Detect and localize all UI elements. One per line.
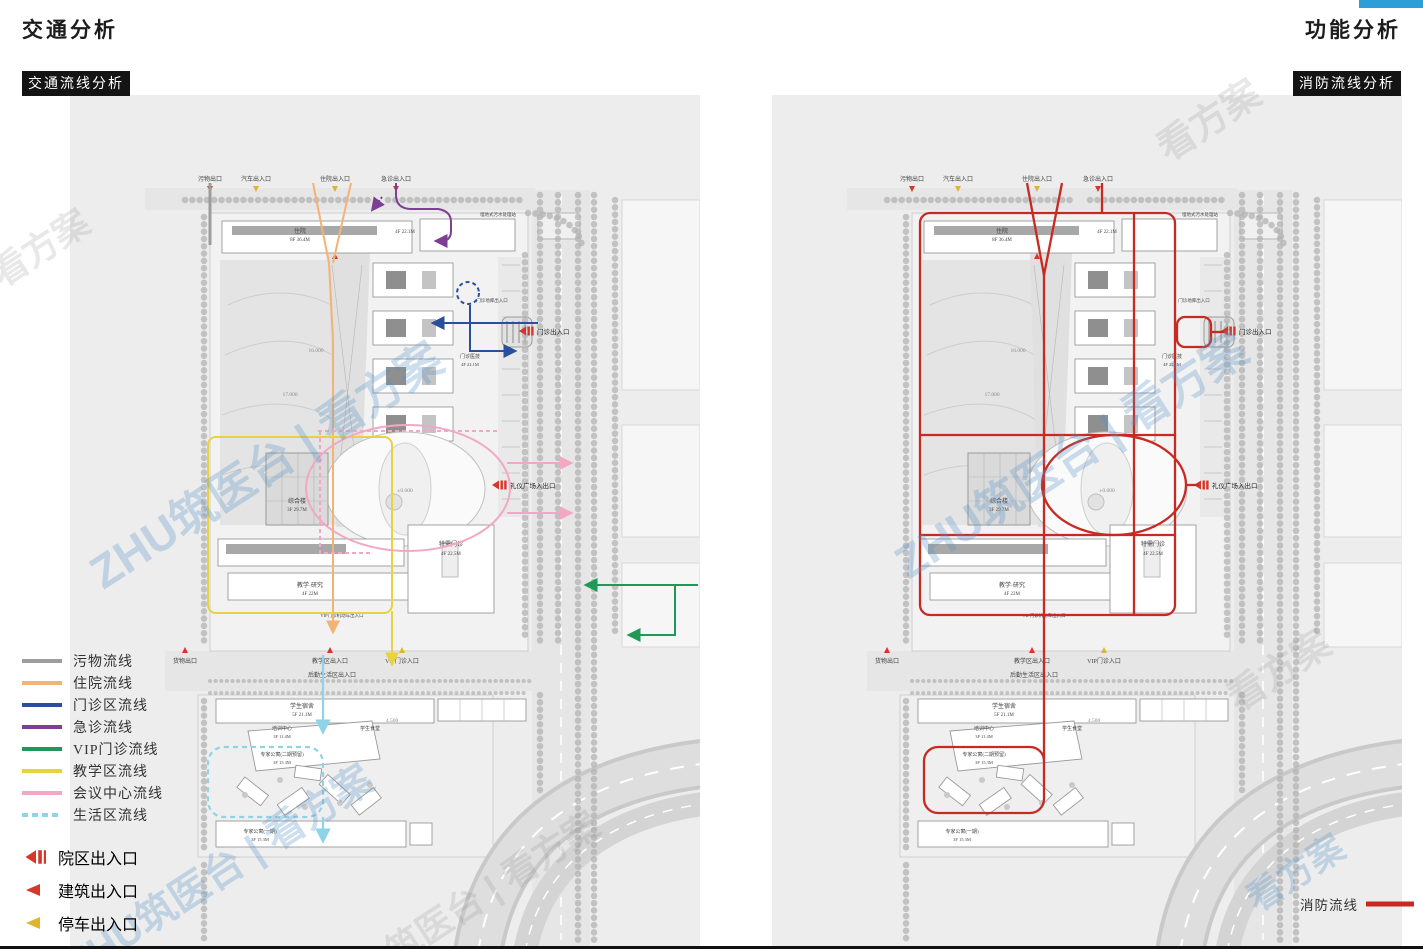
swatch-living-line: [22, 812, 62, 818]
label-teach-h: 4F 22M: [302, 592, 319, 597]
gate-label-vip: VIP门诊入口: [385, 657, 419, 665]
inpatient-building: [222, 221, 412, 253]
legend-row-emergency: 急诊流线: [22, 716, 163, 738]
legend-label: 教学区流线: [73, 761, 148, 781]
accent-bar: [1359, 0, 1423, 8]
swatch-conference-line: [22, 790, 62, 796]
right-subtitle-badge: 消防流线分析: [1293, 71, 1401, 96]
page: 交通分析 交通流线分析 功能分析 消防流线分析: [0, 0, 1423, 949]
gate-label-liyi: 礼仪广场入出口: [510, 481, 556, 490]
gate-label-teaching: 教学区出入口: [312, 657, 348, 665]
legend-label: 停车出入口: [58, 911, 138, 935]
legend-label: 会议中心流线: [73, 783, 163, 803]
label-teach-name: 教学·研究: [297, 581, 323, 589]
site-base: 污物出口 汽车出入口 住院出入口 急诊出入口 埋地式污水处理站 住院 8F 36…: [70, 95, 700, 946]
left-header: 交通分析 交通流线分析: [22, 14, 130, 96]
label-canteen: 学生食堂: [360, 725, 380, 732]
label-dorm-h: 5F 21.1M: [292, 713, 312, 718]
parking-gate-icon: [22, 915, 46, 931]
legend-row-living: 生活区流线: [22, 804, 163, 826]
label-inpatient-h: 8F 36.4M: [290, 238, 310, 243]
legend-row-campus-gate: 院区出入口: [22, 840, 163, 873]
left-subtitle-badge: 交通流线分析: [22, 71, 130, 96]
label-elev17: 17.000: [282, 392, 297, 398]
label-training-name: 培训中心: [272, 725, 292, 732]
flow-legend: 污物流线 住院流线 门诊区流线 急诊流线 VIP门诊流线 教学区流线 会议中心流…: [22, 650, 163, 939]
right-header: 功能分析 消防流线分析: [1293, 14, 1401, 96]
label-clinic-h: 4F 22.1M: [461, 362, 479, 367]
swatch-outpatient-line: [22, 702, 62, 708]
label-inpatient-name: 住院: [294, 227, 306, 235]
fire-legend-line: [1366, 901, 1414, 907]
swatch-emergency-line: [22, 724, 62, 730]
complex-building: [266, 453, 328, 525]
label-plaza-elev: ±0.000: [397, 488, 413, 494]
entrance-legend: 院区出入口 建筑出入口 停车出入口: [22, 840, 163, 939]
swatch-teaching-line: [22, 768, 62, 774]
gate-label-logistics: 后勤生活区出入口: [308, 671, 356, 679]
label-dorm-name: 学生宿舍: [290, 702, 314, 710]
left-title: 交通分析: [22, 14, 130, 44]
legend-label: VIP门诊流线: [73, 739, 159, 759]
building-gate-icon: [22, 882, 46, 898]
legend-row-conference: 会议中心流线: [22, 782, 163, 804]
legend-row-inpatient: 住院流线: [22, 672, 163, 694]
campus-gate-icon: [22, 849, 46, 865]
label-menzhen-basement: 门诊地库出入口: [476, 297, 508, 304]
gate-label-car: 汽车出入口: [241, 175, 271, 183]
label-training-h: 3F 11.4M: [273, 734, 291, 739]
legend-row-building-gate: 建筑出入口: [22, 873, 163, 906]
legend-row-outpatient: 门诊区流线: [22, 694, 163, 716]
gate-label-menzhen: 门诊出入口: [537, 327, 570, 336]
site-plan-traffic: 污物出口 汽车出入口 住院出入口 急诊出入口 埋地式污水处理站 住院 8F 36…: [70, 95, 700, 946]
swatch-inpatient-line: [22, 680, 62, 686]
legend-row-parking-gate: 停车出入口: [22, 906, 163, 939]
swatch-vip-line: [22, 746, 62, 752]
gate-label-waste: 污物出口: [198, 175, 222, 183]
legend-row-vip: VIP门诊流线: [22, 738, 163, 760]
parking-band: [498, 257, 524, 517]
label-apt1-h: 3F 15.3M: [251, 837, 269, 842]
label-sewage: 埋地式污水处理站: [480, 211, 516, 218]
label-apt1-name: 专家公寓(一期): [243, 828, 277, 835]
fire-legend: 消防流线: [1300, 894, 1414, 914]
legend-label: 门诊区流线: [73, 695, 148, 715]
label-vip-h: 4F 22.5M: [441, 552, 461, 557]
label-wing-h: 4F 22.1M: [395, 230, 415, 235]
legend-row-teaching: 教学区流线: [22, 760, 163, 782]
label-apt2-h: 3F 15.3M: [273, 760, 291, 765]
label-complex-h: 3F 29.7M: [287, 508, 307, 513]
legend-label: 住院流线: [73, 673, 133, 693]
gate-label-emergency: 急诊出入口: [381, 175, 411, 183]
label-elev16: 16.000: [308, 348, 323, 354]
gate-label-cargo: 货物出口: [173, 657, 197, 665]
label-apt2-name: 专家公寓(二期预留): [260, 751, 304, 758]
site-plan-fire: [772, 95, 1402, 946]
gate-label-inpatient: 住院出入口: [320, 175, 350, 183]
fire-legend-label: 消防流线: [1300, 894, 1358, 914]
wing-building: [420, 219, 515, 251]
swatch-waste-line: [22, 658, 62, 664]
legend-label: 急诊流线: [73, 717, 133, 737]
legend-label: 建筑出入口: [58, 878, 138, 902]
legend-label: 污物流线: [73, 651, 133, 671]
right-title: 功能分析: [1293, 14, 1401, 44]
label-complex-name: 综合楼: [288, 497, 306, 505]
label-elev45: 4.500: [386, 718, 399, 724]
label-clinic-name: 门诊医技: [460, 353, 480, 360]
legend-label: 生活区流线: [73, 805, 148, 825]
dorm-building: [216, 699, 434, 723]
legend-label: 院区出入口: [58, 845, 138, 869]
legend-row-waste: 污物流线: [22, 650, 163, 672]
